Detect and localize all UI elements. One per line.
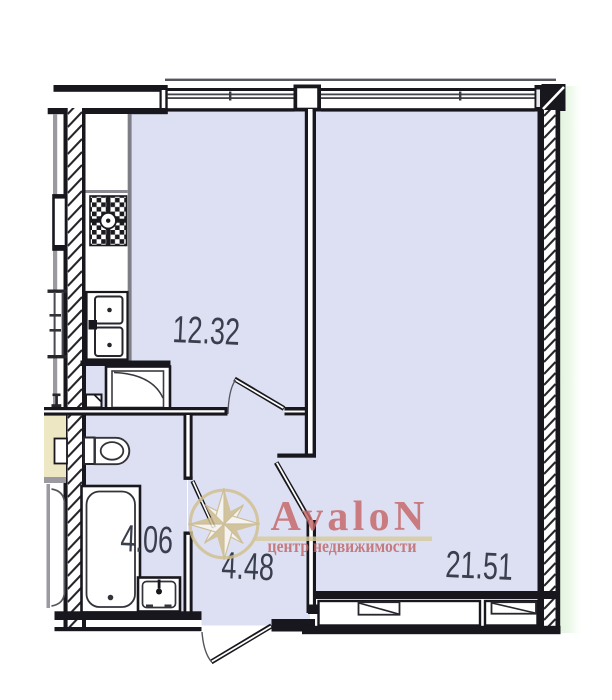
svg-text:12.32: 12.32: [172, 307, 241, 353]
svg-text:4.06: 4.06: [120, 516, 174, 561]
svg-text:21.51: 21.51: [445, 542, 514, 588]
svg-text:центр недвижимости: центр недвижимости: [268, 536, 417, 556]
svg-text:AvaloN: AvaloN: [271, 494, 429, 540]
